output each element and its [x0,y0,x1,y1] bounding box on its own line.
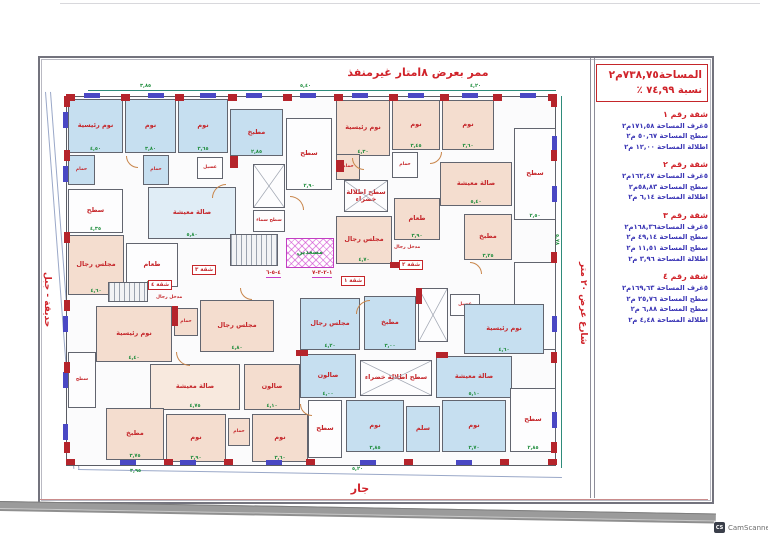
room: سطح٢,٩٠ [286,118,332,190]
dimension-number: ٥,٤٠ [300,83,311,89]
wall-segment [306,459,315,465]
wall-segment [175,94,184,101]
window-segment [63,112,68,128]
wall-segment [121,94,130,101]
garden-mountain-label: حديقة - جبل [42,272,52,327]
room: مطبخ٣,٢٥ [464,214,512,260]
room: سطح سماء [253,210,285,232]
room: نوم رئيسية٤,٤٠ [96,306,172,362]
window-segment [148,93,164,98]
room-label: حمام [75,167,88,172]
room-dimension: ٢,٥٠ [529,213,540,219]
room-dimension: ٤,٤٠ [128,355,139,361]
wall-segment [224,459,233,465]
window-segment [352,93,368,98]
room-dimension: ٤,٢٠ [324,343,335,349]
room-dimension: ٣,٦٥ [197,146,208,152]
room: حمام [68,155,95,185]
cross-hatch [345,181,387,211]
room-dimension: ٤,١٠ [266,403,277,409]
window-segment [408,93,424,98]
room: حمام [143,155,169,185]
room-dimension: ٤,٣٥ [90,226,101,232]
window-segment [84,93,100,98]
room: نوم٣,٦٠ [442,100,494,150]
room-dimension: ٥,٨٠ [186,232,197,238]
dimension-number: ٣,٨٥ [140,83,151,89]
wall-segment [64,362,70,373]
room-label: نوم [144,122,157,129]
apartment-stat-line: سطح المساحة ٥٨,٨٣م٢ [596,182,708,193]
room-dimension: ٢,٨٥ [251,149,262,155]
room: نوم٣,٨٠ [125,99,176,153]
dimension-line-right [561,96,562,468]
wall-segment [283,94,292,101]
room: مطبخ٣,٠٠ [364,296,416,350]
wall-segment [416,288,422,304]
room-label: سطح سماء [255,218,283,223]
room: نوم٣,٩٠ [166,414,226,462]
flat-numbers: ١-٢-٣-٧ [312,270,332,278]
wall-segment [551,252,557,263]
window-segment [552,316,557,332]
wall-segment [64,150,70,161]
apartment-tag: شقة ١ [341,276,365,286]
room-dimension: ٣,٧٠ [468,445,479,451]
room-label: نوم [196,122,209,129]
room-label: سطح [315,425,334,432]
room-label: نوم [273,434,286,441]
room-dimension: ٢,٨٥ [527,445,538,451]
room-label: سطح [299,150,318,157]
dimension-line-top [88,90,556,91]
window-segment [552,412,557,428]
entrance-label: مدخل رجال [394,246,420,251]
apartment-stat-line: ٥غرف المساحة١٦٨,٣٦م٢ [596,222,708,233]
room: صالون٤,١٠ [244,364,300,410]
room: نوم٣,٧٠ [442,400,506,452]
room: مجلس رجال٤,٢٠ [300,298,360,350]
room-label: مجلس رجال [75,261,116,268]
wall-segment [500,459,509,465]
room-label: مطبخ [247,129,267,136]
room-label: مجلس رجال [309,320,350,327]
apartment-stat-block: شقة رقم ٢٥غرف المساحة ١٦٢,٤٧م٢سطح المساح… [596,159,708,203]
room-dimension: ٤,٧٠ [358,257,369,263]
cross-hatch [361,361,431,395]
room-dimension: ٤,٨٠ [231,345,242,351]
wall-segment [440,94,449,101]
apartment-stat-line: ٥غرف المساحة ١٦٢,٤٧م٢ [596,171,708,182]
room-label: سطح [525,170,544,177]
room-label: نوم رئيسية [344,124,382,131]
room-label: حمام [179,319,192,324]
apartment-stat-header: شقة رقم ٣ [596,210,708,222]
dimension-number: ٣,٩٥ [130,468,141,474]
window-segment [120,460,136,465]
window-segment [360,460,376,465]
wall-segment [172,306,178,326]
room-label: حمام [149,167,162,172]
room-label: مطبخ [380,319,400,326]
wall-segment [296,350,308,356]
wall-segment [64,96,70,107]
wall-segment [64,232,70,243]
room-label: حمام [398,162,411,167]
camscanner-watermark: CS CamScanner [714,522,768,533]
room-dimension: ٤,٦٠ [498,347,509,353]
apartment-stat-line: ٥غرف المساحة ١٦٩,٦٣م٢ [596,283,708,294]
room: مجلس رجال٤,٨٠ [200,300,274,352]
room: نوم رئيسية٤,٣٠ [336,100,390,156]
area-statistics-panel: المساحة٧٣٨,٧٥م٢ نسبة ٧٤,٩٩ ٪ شقة رقم ١٥غ… [596,64,708,332]
room: نوم رئيسية٤,٦٠ [464,304,544,354]
room: سلم [406,406,440,452]
room: نوم٣,٦٠ [252,414,308,462]
room-label: مجلس رجال [216,322,257,329]
wall-segment [551,150,557,161]
room-dimension: ٣,٨٥ [369,445,380,451]
room-dimension: ٣,٩٠ [411,233,422,239]
room: سطح اطلالة خضراء [344,180,388,212]
room: نوم رئيسية٤,٥٠ [68,99,123,153]
wall-segment [548,459,557,465]
room-label: نوم [189,434,202,441]
wall-segment [551,442,557,453]
room: صالون٤,٠٠ [300,354,356,398]
room-label: سلم [415,425,431,432]
wall-segment [404,459,413,465]
room-label: مطبخ [125,430,145,437]
apartment-stat-line: سطح المساحة ١١,٥١ م٢ [596,243,708,254]
window-segment [456,460,472,465]
room-label: صالة معيشة [456,180,496,187]
room: سطح٤,٣٥ [68,189,123,233]
room: مصعدين [286,238,334,268]
room-label: نوم رئيسية [485,325,523,332]
wall-segment [230,156,238,168]
window-segment [63,372,68,388]
room [230,234,278,266]
room: حمام [228,418,250,446]
room-dimension: ٥,١٠ [468,391,479,397]
room-label: نوم [461,121,474,128]
room-dimension: ٤,٥٠ [90,146,101,152]
room-label: مطبخ [478,233,498,240]
room-label: طعام [408,215,427,222]
wall-segment [164,459,173,465]
dimension-number: ٤,٢٠ [470,83,481,89]
room: سطح٢,٨٥ [510,388,556,452]
room-dimension: ٤,٦٠ [90,288,101,294]
dimension-number: ٥,٢٠ [352,466,363,472]
room [253,164,285,208]
room-dimension: ٣,٠٠ [384,343,395,349]
wall-segment [551,96,557,107]
room-label: طعام [143,261,162,268]
room: مطبخ٣,٧٥ [106,408,164,460]
apartment-stat-block: شقة رقم ١٥غرف المساحة ١٧١,٥٨م٢سطح المساح… [596,109,708,153]
room-dimension: ٤,٧٥ [189,403,200,409]
apartment-stat-line: ٥غرف المساحة ١٧١,٥٨م٢ [596,121,708,132]
dimension-number: ٥,٧٨ [554,234,560,245]
room: نوم٣,٦٥ [178,99,228,153]
panel-divider-line-2 [594,58,595,498]
room-label: سطح [75,377,89,382]
corridor-label: ممر بعرض ٨امتار غيرمنفذ [318,66,518,79]
apartment-stat-line: سطح المساحة ٢٥,٧٦ م٢ [596,294,708,305]
window-segment [552,186,557,202]
wall-segment [551,352,557,363]
entrance-label: مدخل رجال [156,296,182,301]
wall-segment [336,160,344,172]
room-label: نوم رئيسية [77,122,115,129]
apartment-stat-header: شقة رقم ٤ [596,271,708,283]
room: غسيل [197,157,223,179]
room-label: نوم [467,422,480,429]
room: نوم٣,٨٥ [346,400,404,452]
room-label: مصعدين [296,249,324,256]
wall-segment [436,352,448,358]
wall-segment [389,94,398,101]
neighbor-label: جار [330,482,390,495]
camscanner-icon: CS [714,522,725,533]
room: مطبخ٢,٨٥ [230,109,283,156]
apartment-stat-line: سطح المساحة ٤٩,١٤ م٢ [596,232,708,243]
apartment-stat-header: شقة رقم ١ [596,109,708,121]
room: صالة معيشة٤,٧٥ [150,364,240,410]
room-dimension: ٣,٢٥ [482,253,493,259]
apartment-tag: شقة ٤ [148,280,172,290]
room-label: صالون [317,372,340,379]
frame-bottom-accent [40,499,708,500]
window-segment [63,424,68,440]
apartment-stat-line: اطلالة المساحة ١٢,٠٠ م٢ [596,142,708,153]
room: نوم٣,٤٥ [392,100,440,150]
room [108,282,148,302]
apartment-stat-line: سطح المساحة ٥٠,٦٧ م٢ [596,131,708,142]
room-dimension: ٣,٤٥ [410,143,421,149]
room-dimension: ٢,٩٠ [303,183,314,189]
room-label: غسيل [202,165,218,170]
scanned-floorplan-page: { "page": { "top_label": "ممر بعرض ٨امتا… [0,0,768,543]
room: حمام [392,152,418,178]
total-area-box: المساحة٧٣٨,٧٥م٢ نسبة ٧٤,٩٩ ٪ [596,64,708,102]
room: صالة معيشة٥,٤٠ [440,162,512,206]
wall-segment [493,94,502,101]
room: مجلس رجال٤,٧٠ [336,216,392,264]
apartment-stat-block: شقة رقم ٤٥غرف المساحة ١٦٩,٦٣م٢سطح المساح… [596,271,708,325]
room [418,288,448,342]
area-ratio-value: نسبة ٧٤,٩٩ ٪ [602,84,702,98]
room-label: صالة معيشة [172,209,212,216]
room-label: مجلس رجال [343,236,384,243]
apartment-stat-line: اطلالة المساحة ٤,٤٨ م٢ [596,315,708,326]
window-segment [266,460,282,465]
room-dimension: ٤,٠٠ [322,391,333,397]
window-segment [300,93,316,98]
window-segment [462,93,478,98]
room-label: نوم [409,121,422,128]
total-area-value: المساحة٧٣٨,٧٥م٢ [602,68,702,84]
camscanner-text: CamScanner [728,524,768,532]
room-label: نوم رئيسية [115,330,153,337]
apartment-tag: شقة ٢ [399,260,423,270]
flat-numbers: ٤-٥-٦ [266,270,281,278]
room-label: صالة معيشة [175,383,215,390]
room: سطح٢,٥٠ [514,128,556,220]
room: سطح [308,400,342,458]
room: سطح [68,352,96,408]
apartment-stat-line: اطلالة المساحة ٦,١٤ م٢ [596,192,708,203]
room-dimension: ٣,٧٥ [129,453,140,459]
apartment-stat-line: سطح المساحة ٦,٨٨ م٢ [596,304,708,315]
room: صالة معيشة٥,١٠ [436,356,512,398]
apartment-tag: شقة ٣ [192,265,216,275]
wall-segment [66,459,75,465]
wall-segment [64,442,70,453]
room-label: نوم [368,422,381,429]
window-segment [63,166,68,182]
room-label: حمام [232,429,245,434]
apartment-stat-header: شقة رقم ٢ [596,159,708,171]
scan-edge-line [60,3,760,4]
window-segment [520,93,536,98]
room-dimension: ٣,٦٠ [462,143,473,149]
window-segment [63,316,68,332]
cross-hatch [254,165,284,207]
wall-segment [334,94,343,101]
room: سطح اطلالة خضراء [360,360,432,396]
window-segment [200,93,216,98]
street-width-label: شارع عرض ٢٠ متر [578,262,588,345]
room-dimension: ٣,٨٠ [145,146,156,152]
room-label: صالة معيشة [454,373,494,380]
wall-segment [64,300,70,311]
window-segment [180,460,196,465]
apartment-stat-line: اطلالة المساحة ٣,٩٦ م٢ [596,254,708,265]
room-label: سطح [86,207,105,214]
apartment-stats-list: شقة رقم ١٥غرف المساحة ١٧١,٥٨م٢سطح المساح… [596,109,708,325]
apartment-stat-block: شقة رقم ٣٥غرف المساحة١٦٨,٣٦م٢سطح المساحة… [596,210,708,264]
room: طعام٣,٩٠ [394,198,440,240]
cross-hatch [419,289,447,341]
wall-segment [228,94,237,101]
room-dimension: ٥,٤٠ [470,199,481,205]
panel-divider-line [590,58,591,498]
room-label: صالون [261,383,284,390]
window-segment [246,93,262,98]
room-label: سطح [523,416,542,423]
